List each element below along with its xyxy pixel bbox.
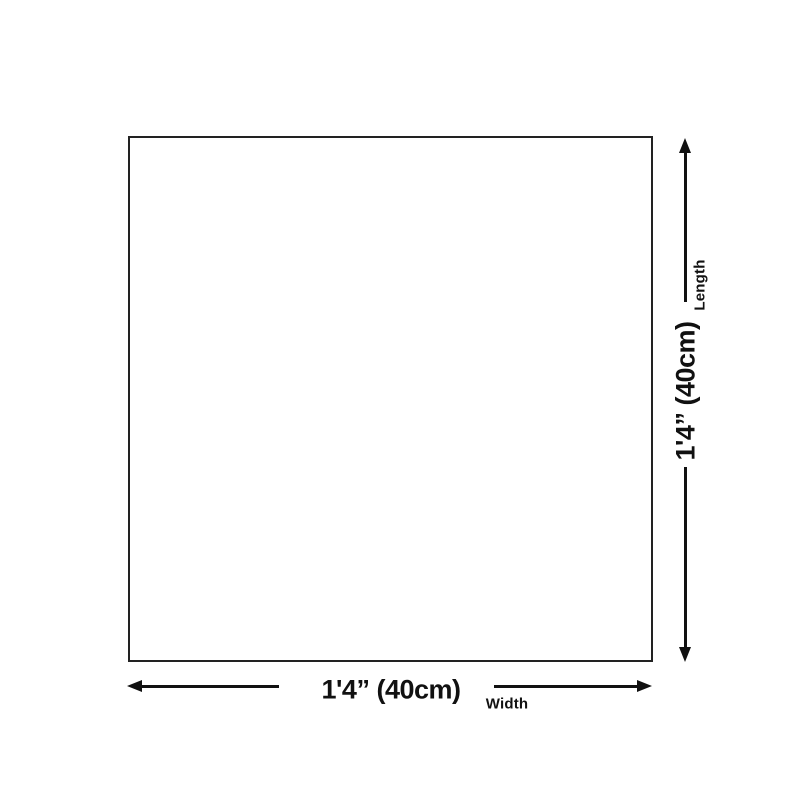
arrow-right-icon	[637, 680, 652, 692]
dimension-diagram: Length 1'4” (40cm) 1'4” (40cm) Width	[0, 0, 800, 800]
length-dimension-line-upper	[684, 152, 687, 302]
product-outline	[128, 136, 653, 662]
width-value: 1'4” (40cm)	[322, 675, 461, 706]
width-label: Width	[486, 696, 529, 713]
length-dimension-line-lower	[684, 467, 687, 648]
length-value: 1'4” (40cm)	[671, 322, 702, 461]
width-dimension-line-right	[494, 685, 638, 688]
arrow-down-icon	[679, 647, 691, 662]
length-label: Length	[692, 259, 709, 310]
width-dimension-line-left	[141, 685, 279, 688]
arrow-left-icon	[127, 680, 142, 692]
arrow-up-icon	[679, 138, 691, 153]
